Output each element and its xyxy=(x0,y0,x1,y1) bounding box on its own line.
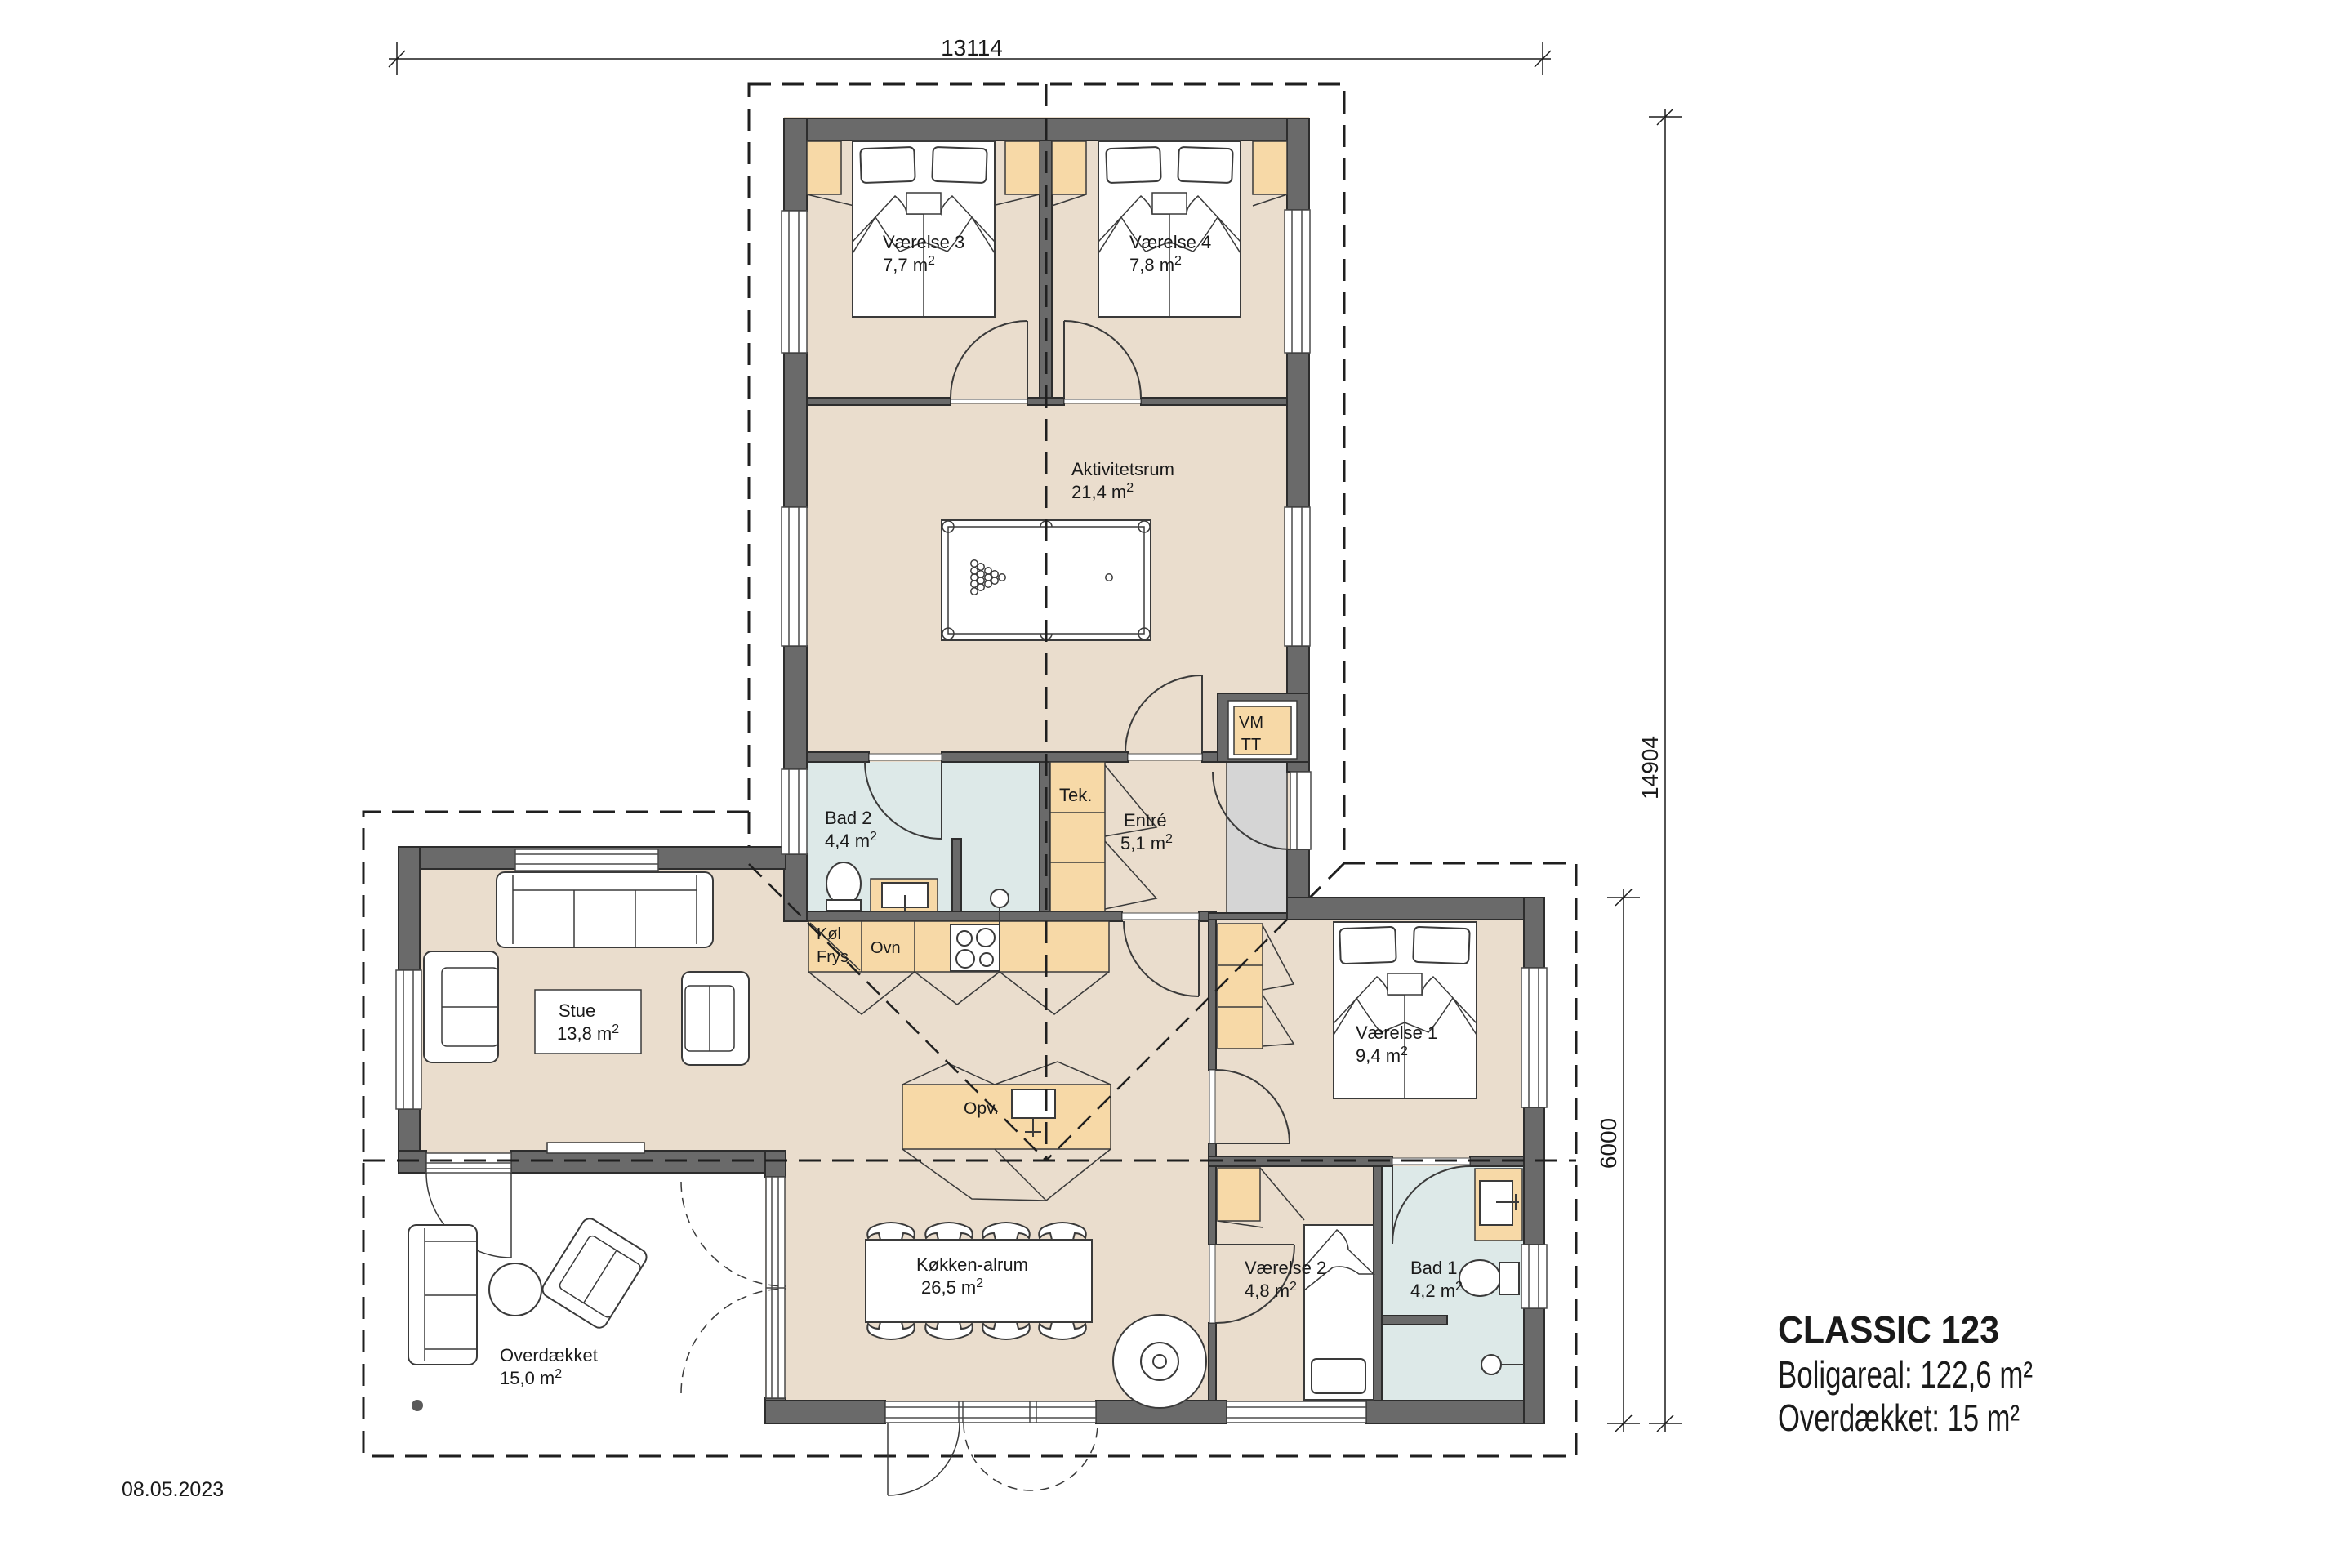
svg-text:6000: 6000 xyxy=(1596,1118,1621,1169)
svg-text:Opv.: Opv. xyxy=(964,1099,999,1118)
svg-text:5,1 m2: 5,1 m2 xyxy=(1120,832,1173,853)
svg-text:Stue: Stue xyxy=(559,1000,595,1021)
svg-text:Entré: Entré xyxy=(1124,810,1167,831)
svg-text:Overdækket: 15 m²: Overdækket: 15 m² xyxy=(1778,1396,2020,1439)
svg-text:Køl: Køl xyxy=(817,925,841,943)
svg-text:4,8 m2: 4,8 m2 xyxy=(1245,1280,1297,1301)
svg-text:TT: TT xyxy=(1241,736,1261,754)
svg-text:4,2 m2: 4,2 m2 xyxy=(1410,1280,1463,1301)
svg-text:15,0 m2: 15,0 m2 xyxy=(500,1367,562,1388)
svg-text:08.05.2023: 08.05.2023 xyxy=(122,1478,224,1501)
svg-text:7,8 m2: 7,8 m2 xyxy=(1129,254,1182,275)
svg-text:Værelse 3: Værelse 3 xyxy=(883,232,964,252)
svg-text:13114: 13114 xyxy=(941,35,1003,60)
svg-text:CLASSIC 123: CLASSIC 123 xyxy=(1778,1308,1999,1351)
svg-text:Frys: Frys xyxy=(817,948,849,966)
svg-text:Aktivitetsrum: Aktivitetsrum xyxy=(1071,459,1174,479)
svg-text:Bad 2: Bad 2 xyxy=(825,808,872,828)
svg-text:Køkken-alrum: Køkken-alrum xyxy=(916,1254,1028,1275)
svg-text:Værelse 1: Værelse 1 xyxy=(1356,1022,1437,1043)
svg-text:VM: VM xyxy=(1239,714,1263,732)
svg-text:26,5 m2: 26,5 m2 xyxy=(921,1276,983,1298)
svg-text:4,4 m2: 4,4 m2 xyxy=(825,830,877,851)
svg-text:21,4 m2: 21,4 m2 xyxy=(1071,481,1134,502)
svg-text:Værelse 4: Værelse 4 xyxy=(1129,232,1211,252)
svg-text:7,7 m2: 7,7 m2 xyxy=(883,254,935,275)
svg-text:13,8 m2: 13,8 m2 xyxy=(557,1022,619,1044)
svg-text:Overdækket: Overdækket xyxy=(500,1345,598,1365)
svg-text:Ovn: Ovn xyxy=(871,939,901,957)
svg-text:14904: 14904 xyxy=(1637,736,1663,800)
svg-text:9,4 m2: 9,4 m2 xyxy=(1356,1045,1408,1066)
svg-text:Bad 1: Bad 1 xyxy=(1410,1258,1458,1278)
svg-text:Boligareal: 122,6 m²: Boligareal: 122,6 m² xyxy=(1778,1353,2033,1396)
svg-text:Værelse 2: Værelse 2 xyxy=(1245,1258,1326,1278)
svg-text:Tek.: Tek. xyxy=(1059,785,1092,805)
